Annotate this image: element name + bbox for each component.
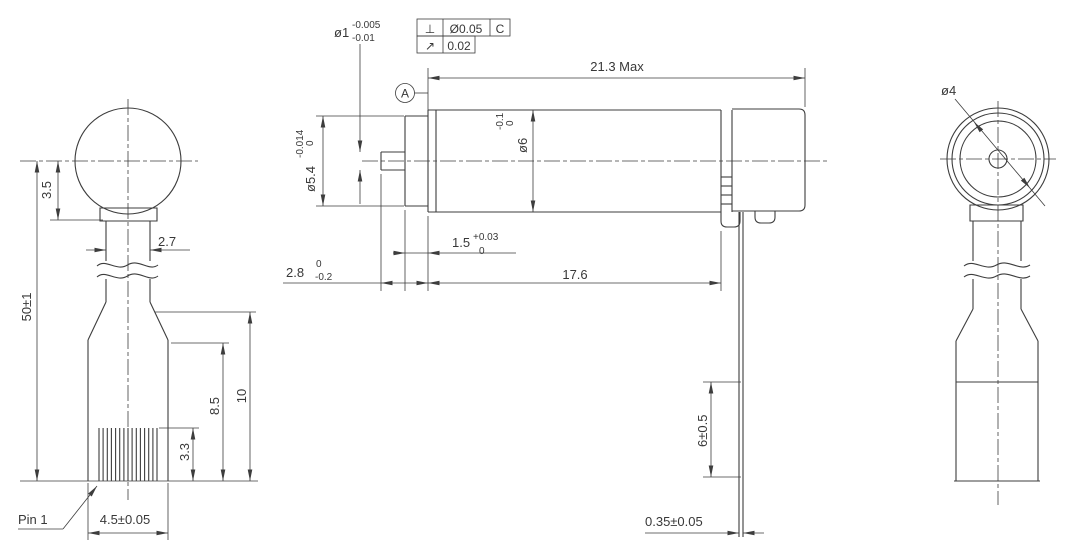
dim-text: 2.7 — [158, 234, 176, 249]
end-cap — [732, 109, 805, 211]
middle-view: ø1 -0.005 -0.01 ⊥ Ø0.05 C ↗ 0.02 A — [283, 19, 830, 537]
datum-label: A — [401, 87, 409, 101]
break-line — [964, 263, 1030, 267]
dim-tol-upper: -0.005 — [352, 20, 381, 31]
left-view: 3.5 50±1 2.7 3.3 8.5 — [18, 99, 258, 540]
dim-tol-upper: 0 — [305, 140, 316, 146]
dim-tol-lower: -0.01 — [352, 33, 375, 44]
dim-text: ø1 — [334, 25, 349, 40]
dim-tol-lower: 0 — [479, 246, 485, 257]
break-line — [97, 274, 158, 278]
dim-shaft-protrusion: 2.8 0 -0.2 — [283, 174, 721, 291]
dim-text: 1.5 — [452, 235, 470, 250]
dim-tail-height: 10 — [155, 312, 256, 481]
right-view: ø4 — [940, 83, 1056, 505]
dim-text: 3.3 — [177, 443, 192, 461]
terminal-tab — [721, 212, 740, 227]
technical-drawing: 3.5 50±1 2.7 3.3 8.5 — [0, 0, 1076, 560]
dim-text: 50±1 — [19, 293, 34, 322]
dim-face-diameter: ø4 — [941, 83, 1045, 206]
dim-text: 8.5 — [207, 397, 222, 415]
fcf-perp-tol: Ø0.05 — [450, 22, 483, 36]
dim-tol-lower: -0.1 — [495, 112, 506, 130]
left-view-centerlines — [20, 99, 198, 500]
break-line — [97, 263, 158, 267]
dim-body-length: 17.6 — [428, 231, 721, 291]
dim-tol-upper: 0 — [505, 120, 516, 126]
dim-text: 17.6 — [562, 267, 587, 282]
dim-text: 21.3 Max — [590, 59, 644, 74]
dim-tol-lower: -0.2 — [315, 272, 333, 283]
dim-text: 2.8 — [286, 265, 304, 280]
dim-ball-center-height: 3.5 — [39, 161, 103, 220]
dim-text: ø6 — [515, 138, 530, 153]
break-line — [964, 274, 1030, 278]
feature-control-frame: ⊥ Ø0.05 C ↗ 0.02 — [417, 19, 510, 53]
runout-icon: ↗ — [425, 39, 435, 53]
dim-neck-width: 2.7 — [86, 234, 190, 252]
fcf-runout-tol: 0.02 — [447, 39, 471, 53]
terminal-tab — [755, 211, 775, 223]
dim-text: ø5.4 — [303, 166, 318, 192]
right-view-centerlines — [940, 101, 1056, 505]
dim-bushing-diameter: ø5.4 0 -0.014 — [295, 116, 404, 206]
fcf-datum-ref: C — [496, 22, 505, 36]
perpendicularity-icon: ⊥ — [425, 22, 435, 36]
dim-overall-length-left: 50±1 — [19, 161, 39, 481]
middle-view-outline — [381, 109, 805, 537]
datum-a-symbol: A — [396, 84, 429, 103]
dim-text: 3.5 — [39, 181, 54, 199]
dim-text: 0.35±0.05 — [645, 514, 703, 529]
dim-tol-lower: -0.014 — [295, 129, 306, 158]
dim-text: 6±0.5 — [695, 415, 710, 447]
dim-lead-thickness: 0.35±0.05 — [645, 514, 764, 535]
dim-lead-length: 6±0.5 — [695, 382, 741, 477]
pin1-label: Pin 1 — [18, 512, 48, 527]
dim-tol-upper: 0 — [316, 259, 322, 270]
dim-bushing-length: 1.5 +0.03 0 — [393, 210, 516, 291]
dim-text: 10 — [234, 389, 249, 403]
dim-text: ø4 — [941, 83, 956, 98]
dim-text: 4.5±0.05 — [100, 512, 151, 527]
dim-pin-length: 3.3 — [159, 428, 199, 481]
drawing-sheet: 3.5 50±1 2.7 3.3 8.5 — [0, 0, 1076, 560]
left-view-outline — [20, 108, 258, 481]
dim-overall-length-middle: 21.3 Max — [428, 59, 805, 110]
pin1-callout: Pin 1 — [18, 485, 99, 529]
dim-tol-upper: +0.03 — [473, 232, 499, 243]
dim-shaft-diameter: ø1 -0.005 -0.01 — [334, 20, 381, 204]
